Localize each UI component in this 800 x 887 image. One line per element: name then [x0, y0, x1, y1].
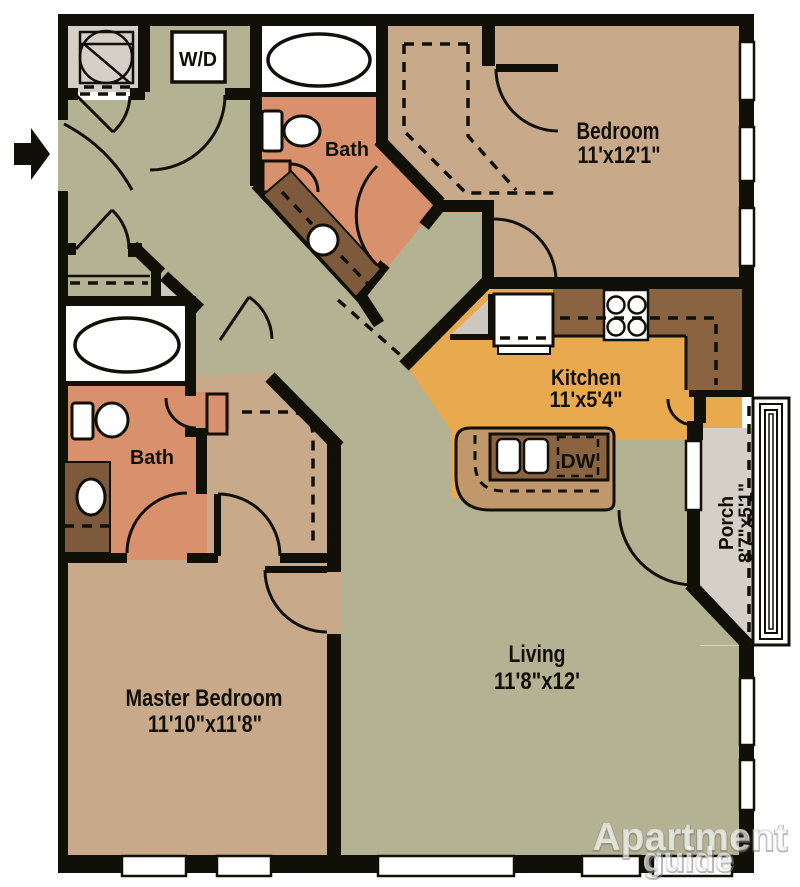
svg-text:Porch: Porch: [716, 496, 738, 550]
svg-text:Bath: Bath: [325, 139, 369, 161]
svg-text:11'x5'4": 11'x5'4": [550, 387, 623, 412]
svg-text:11'x12'1": 11'x12'1": [578, 142, 661, 169]
svg-text:W/D: W/D: [179, 49, 217, 71]
svg-text:guide: guide: [643, 841, 734, 879]
svg-text:11'8"x12': 11'8"x12': [494, 668, 580, 695]
svg-text:Bedroom: Bedroom: [577, 118, 660, 145]
svg-text:8'7"x5'1": 8'7"x5'1": [736, 483, 757, 563]
svg-text:DW: DW: [561, 451, 596, 473]
svg-text:Living: Living: [509, 641, 566, 668]
svg-text:Master Bedroom: Master Bedroom: [126, 685, 283, 712]
svg-text:Bath: Bath: [130, 447, 174, 469]
svg-text:11'10"x11'8": 11'10"x11'8": [148, 711, 262, 738]
